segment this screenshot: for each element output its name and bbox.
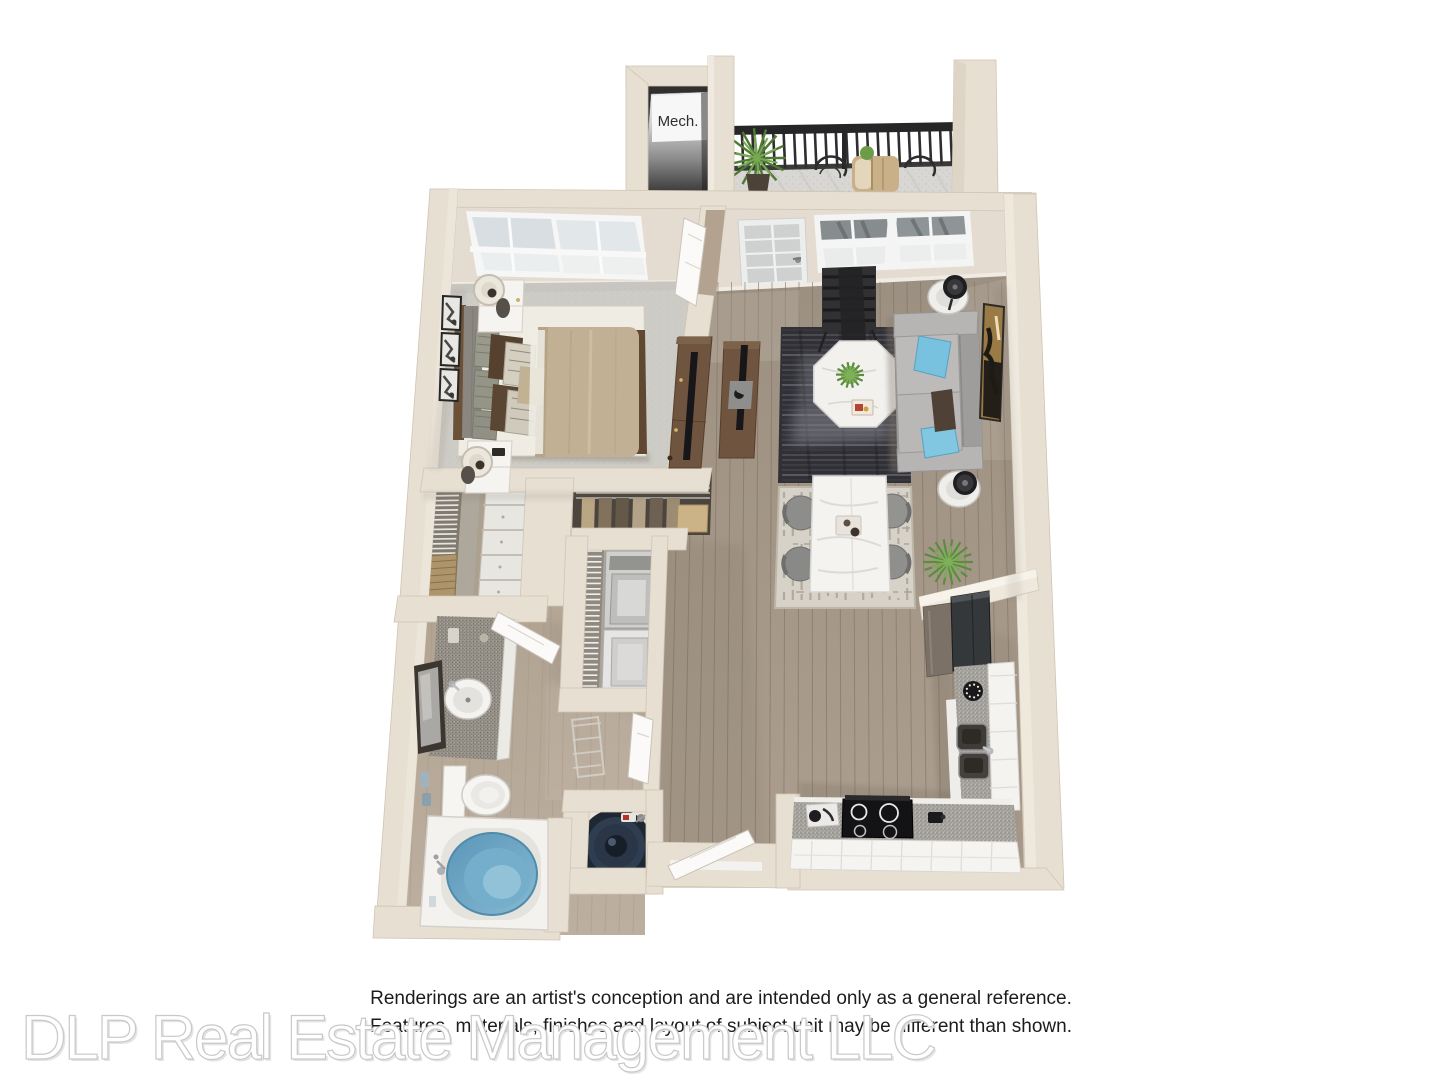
svg-text:DLP Real Estate Management LLC: DLP Real Estate Management LLC xyxy=(21,1003,937,1073)
svg-text:Mech.: Mech. xyxy=(658,113,699,130)
